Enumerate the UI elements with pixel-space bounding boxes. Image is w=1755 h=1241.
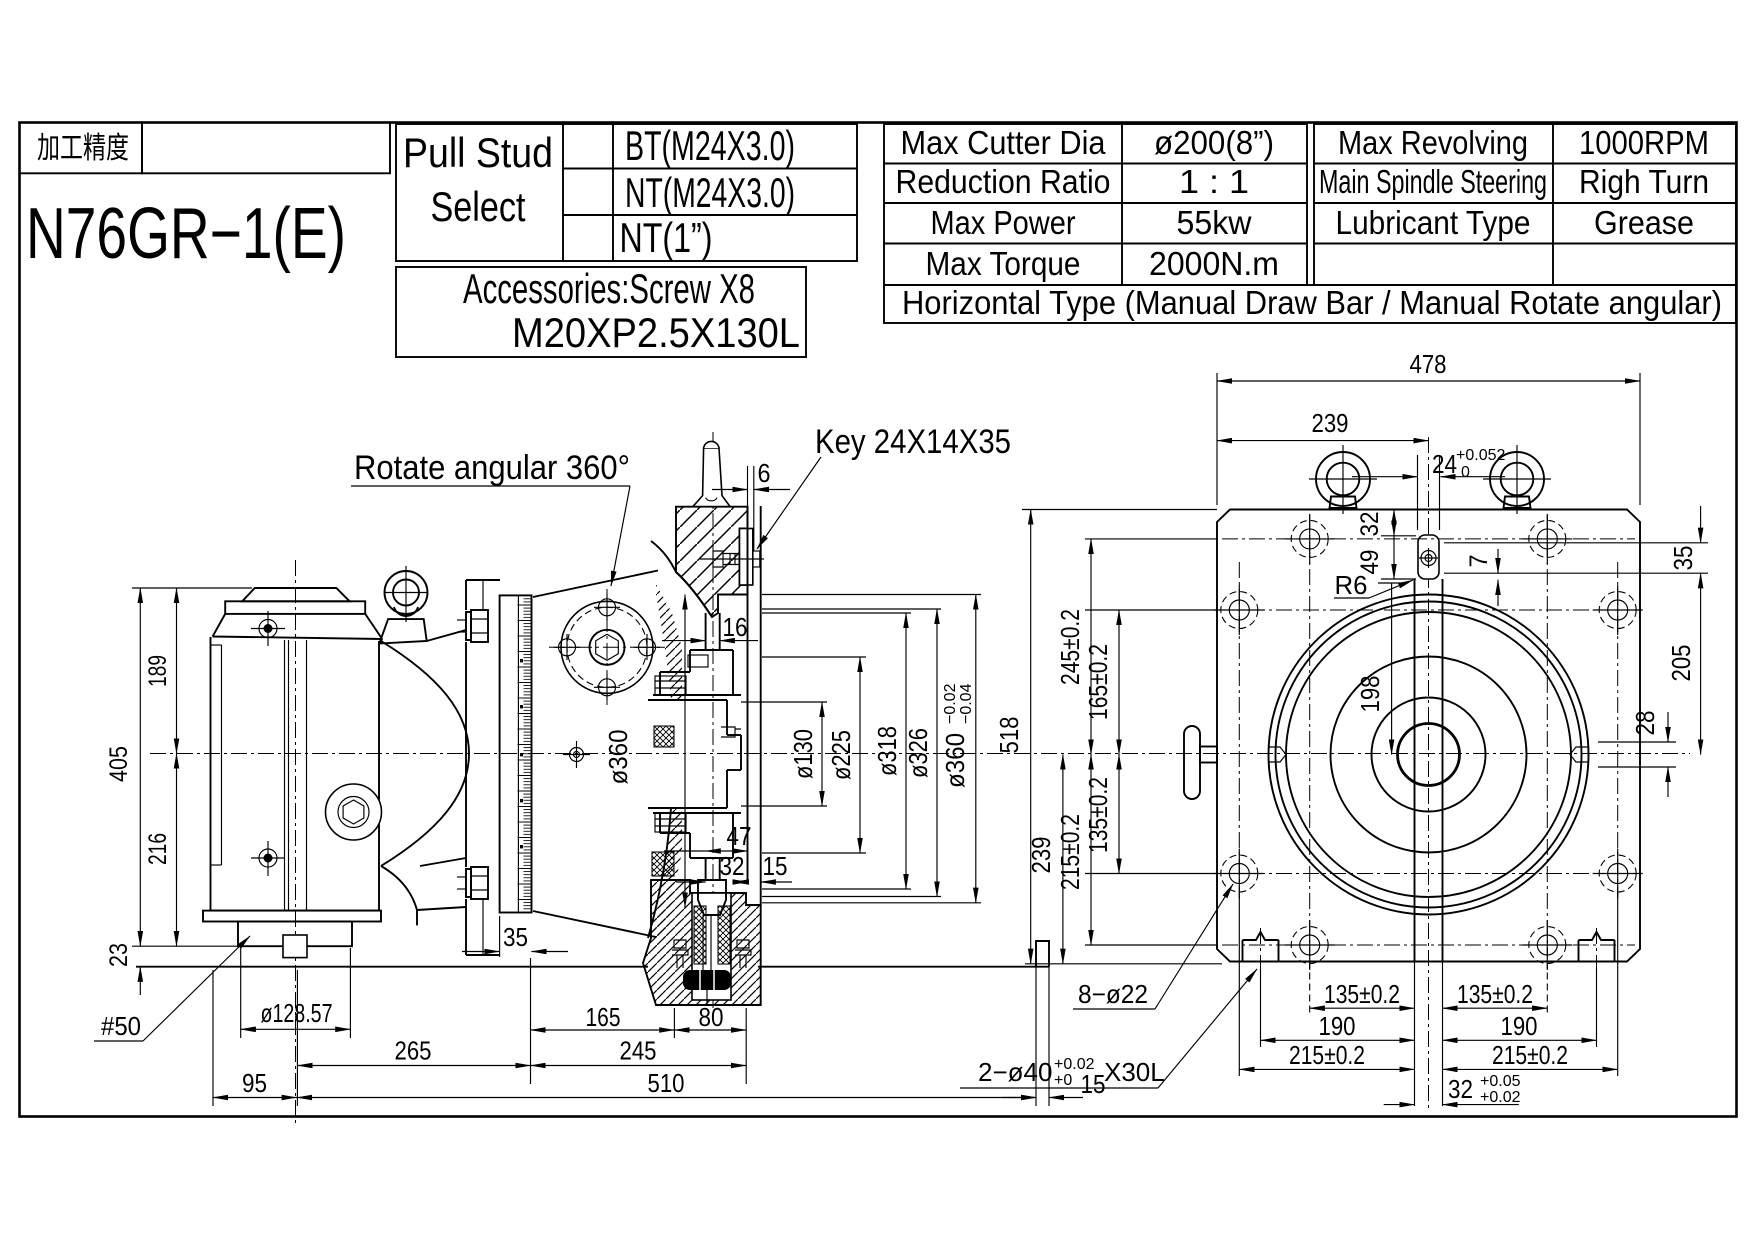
svg-text:M20XP2.5X130L: M20XP2.5X130L: [512, 309, 800, 356]
svg-text:X30L: X30L: [1104, 1057, 1165, 1087]
svg-text:Righ Turn: Righ Turn: [1579, 163, 1709, 200]
svg-text:55kw: 55kw: [1177, 204, 1252, 241]
svg-text:6: 6: [758, 458, 771, 488]
svg-text:ø360: ø360: [940, 733, 970, 788]
svg-text:7: 7: [1465, 555, 1493, 568]
svg-text:478: 478: [1410, 349, 1447, 379]
svg-text:−0.04: −0.04: [958, 683, 975, 724]
svg-text:80: 80: [699, 1002, 724, 1032]
svg-text:Key 24X14X35: Key 24X14X35: [815, 423, 1011, 461]
svg-text:518: 518: [994, 717, 1024, 754]
svg-text:Grease: Grease: [1594, 204, 1694, 241]
svg-text:ø360: ø360: [603, 730, 633, 785]
svg-text:#50: #50: [101, 1011, 141, 1041]
svg-text:265: 265: [395, 1036, 432, 1066]
svg-text:ø128.57: ø128.57: [261, 998, 333, 1028]
svg-text:Max Revolving: Max Revolving: [1338, 124, 1528, 161]
svg-text:215±0.2: 215±0.2: [1492, 1040, 1568, 1070]
svg-text:ø130: ø130: [788, 729, 818, 779]
svg-text:+0: +0: [1054, 1072, 1072, 1089]
svg-text:+0.02: +0.02: [1054, 1056, 1095, 1073]
svg-text:Pull Stud: Pull Stud: [403, 129, 553, 176]
svg-text:NT(M24X3.0): NT(M24X3.0): [625, 169, 795, 216]
svg-text:ø318: ø318: [872, 726, 902, 776]
svg-text:NT(1”): NT(1”): [620, 214, 713, 261]
svg-text:Select: Select: [431, 183, 526, 230]
svg-text:165: 165: [586, 1002, 621, 1032]
svg-text:198: 198: [1355, 676, 1385, 713]
svg-text:24: 24: [1432, 449, 1457, 479]
svg-text:35: 35: [503, 922, 528, 952]
svg-text:510: 510: [648, 1068, 685, 1098]
svg-text:Lubricant Type: Lubricant Type: [1336, 204, 1531, 241]
svg-text:189: 189: [144, 655, 172, 687]
svg-text:ø225: ø225: [826, 730, 856, 780]
svg-text:BT(M24X3.0): BT(M24X3.0): [625, 122, 795, 169]
svg-text:Horizontal Type (Manual Draw B: Horizontal Type (Manual Draw Bar / Manua…: [902, 284, 1722, 321]
svg-text:8−ø22: 8−ø22: [1078, 979, 1148, 1009]
svg-text:ø200(8”): ø200(8”): [1154, 124, 1274, 161]
svg-text:Max Torque: Max Torque: [926, 245, 1081, 282]
svg-text:23: 23: [105, 943, 133, 967]
svg-text:−0.02: −0.02: [942, 683, 959, 724]
svg-text:165±0.2: 165±0.2: [1083, 644, 1113, 720]
svg-text:239: 239: [1312, 408, 1349, 438]
svg-text:Main Spindle Steering: Main Spindle Steering: [1319, 163, 1547, 200]
svg-text:28: 28: [1630, 711, 1660, 736]
svg-text:Accessories:Screw X8: Accessories:Screw X8: [463, 265, 755, 312]
svg-text:R6: R6: [1335, 570, 1368, 600]
svg-text:245: 245: [620, 1036, 657, 1066]
svg-text:205: 205: [1666, 645, 1696, 682]
svg-text:215±0.2: 215±0.2: [1289, 1040, 1365, 1070]
svg-text:32: 32: [1356, 512, 1384, 537]
svg-text:15: 15: [1081, 1069, 1106, 1099]
svg-text:35: 35: [1668, 546, 1698, 571]
svg-text:ø326: ø326: [903, 728, 933, 778]
svg-text:135±0.2: 135±0.2: [1457, 979, 1533, 1009]
svg-text:Max Power: Max Power: [931, 204, 1076, 241]
svg-text:245±0.2: 245±0.2: [1055, 609, 1085, 685]
svg-text:190: 190: [1501, 1011, 1538, 1041]
svg-text:+0.052: +0.052: [1456, 447, 1505, 464]
svg-text:32: 32: [720, 851, 745, 881]
svg-text:2000N.m: 2000N.m: [1149, 245, 1279, 282]
svg-text:239: 239: [1026, 837, 1056, 874]
svg-text:32: 32: [1448, 1074, 1473, 1104]
svg-text:215±0.2: 215±0.2: [1055, 814, 1085, 890]
svg-text:0: 0: [1461, 464, 1470, 481]
svg-text:N76GR−1(E): N76GR−1(E): [26, 194, 346, 274]
svg-text:135±0.2: 135±0.2: [1324, 979, 1400, 1009]
svg-text:+0.05: +0.05: [1480, 1073, 1521, 1090]
svg-text:216: 216: [144, 833, 172, 865]
svg-text:加工精度: 加工精度: [37, 132, 129, 165]
svg-text:Reduction Ratio: Reduction Ratio: [896, 163, 1111, 200]
svg-text:15: 15: [763, 851, 788, 881]
svg-text:95: 95: [242, 1068, 267, 1098]
svg-text:405: 405: [105, 746, 133, 782]
svg-text:135±0.2: 135±0.2: [1083, 777, 1113, 853]
svg-text:+0.02: +0.02: [1480, 1089, 1521, 1106]
svg-text:190: 190: [1319, 1011, 1356, 1041]
svg-text:2−ø40: 2−ø40: [978, 1057, 1052, 1087]
svg-text:Rotate angular 360°: Rotate angular 360°: [354, 449, 630, 487]
svg-text:47: 47: [727, 821, 752, 851]
svg-text:Max Cutter Dia: Max Cutter Dia: [901, 124, 1107, 161]
svg-text:1 : 1: 1 : 1: [1179, 163, 1249, 200]
svg-text:1000RPM: 1000RPM: [1579, 124, 1709, 161]
svg-text:16: 16: [723, 612, 748, 642]
